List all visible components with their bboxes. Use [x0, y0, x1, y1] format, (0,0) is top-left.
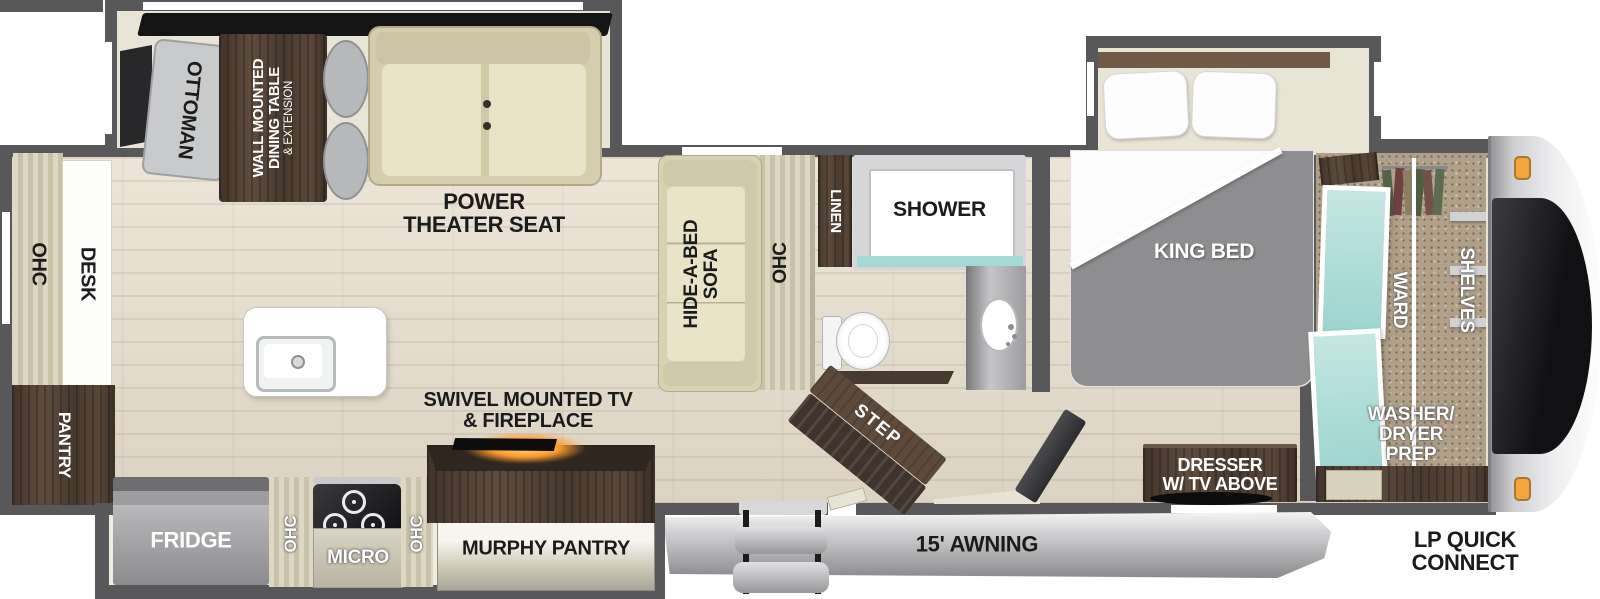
entry-steps	[733, 500, 829, 597]
ward-label: WARD	[1389, 272, 1409, 329]
shelves-label: SHELVES	[1456, 247, 1476, 332]
closet-base-counter	[1326, 470, 1382, 500]
clothes-item	[1432, 169, 1444, 216]
cooktop	[313, 477, 401, 484]
kitchen-sink	[256, 336, 336, 392]
burner	[342, 490, 366, 514]
dining-table: WALL MOUNTED DINING TABLE & EXTENSION	[219, 34, 327, 202]
shower: SHOWER	[853, 155, 1026, 270]
king-bed-label: KING BED	[1154, 241, 1254, 263]
front-cap-window	[1492, 198, 1592, 454]
faucet	[1012, 334, 1017, 339]
cupholder	[483, 122, 491, 130]
ohc-kitchen-left-label: OHC	[282, 516, 300, 553]
window	[2, 212, 10, 324]
sofa-arm	[663, 160, 755, 186]
kitchen-island	[243, 307, 387, 397]
cupholder	[483, 100, 491, 108]
dinette-chair	[323, 122, 369, 200]
window	[682, 147, 782, 155]
sofa-back	[745, 162, 757, 384]
step-tread	[733, 562, 829, 593]
rear-wall	[0, 145, 12, 515]
ottoman-label: OTTOMAN	[173, 60, 204, 160]
dresser-label: DRESSER W/ TV ABOVE	[1162, 456, 1277, 494]
window	[104, 42, 112, 134]
dining-table-label: WALL MOUNTED DINING TABLE & EXTENSION	[251, 59, 295, 178]
linen-cabinet: LINEN	[818, 155, 852, 267]
linen-label: LINEN	[827, 189, 843, 233]
rv-floorplan: OTTOMAN WALL MOUNTED DINING TABLE & EXTE…	[0, 0, 1600, 599]
swivel-tv-label: SWIVEL MOUNTED TV & FIREPLACE	[398, 390, 658, 432]
overhead-cabinet-kitchen-left: OHC	[269, 477, 313, 587]
dinette-chair	[323, 40, 369, 118]
step-tread	[735, 527, 827, 554]
desk: DESK	[62, 160, 112, 387]
fireplace-insert	[452, 438, 557, 451]
overhead-cabinet-sofa: OHC	[755, 155, 815, 390]
microwave: MICRO	[313, 528, 403, 588]
pantry-label: PANTRY	[55, 412, 73, 478]
shower-label: SHOWER	[893, 199, 986, 221]
step-platform	[739, 501, 827, 515]
faucet	[1008, 324, 1014, 330]
hide-a-bed-sofa: HIDE-A-BED SOFA	[658, 155, 762, 392]
toilet	[822, 312, 888, 372]
vanity	[966, 266, 1026, 390]
sofa-arm	[663, 362, 755, 386]
window	[1374, 62, 1381, 116]
headboard	[1098, 52, 1330, 68]
pillow	[1191, 71, 1277, 140]
window	[1171, 505, 1277, 513]
window	[1087, 62, 1094, 116]
theater-seat-console	[481, 64, 489, 176]
lp-quick-connect-label: LP QUICK CONNECT	[1385, 528, 1545, 574]
bath-bedroom-wall	[1032, 150, 1050, 392]
sofa-label: HIDE-A-BED SOFA	[682, 219, 722, 328]
pantry: PANTRY	[12, 385, 115, 505]
desk-label: DESK	[77, 246, 98, 300]
murphy-pantry-label: MURPHY PANTRY	[462, 539, 630, 560]
ohc-sofa-label: OHC	[771, 242, 791, 283]
toilet-seat	[848, 324, 878, 358]
fridge-label: FRIDGE	[150, 528, 231, 551]
micro-label: MICRO	[327, 548, 389, 568]
marker-light	[1514, 477, 1531, 501]
murphy-pantry: MURPHY PANTRY	[437, 519, 655, 591]
overhead-cabinet-desk: OHC	[13, 153, 63, 385]
pillow	[1102, 70, 1189, 140]
awning-label: 15' AWNING	[916, 532, 1038, 555]
theater-seat	[368, 26, 602, 186]
closet-shelf	[1450, 212, 1488, 221]
theater-seat-label: POWER THEATER SEAT	[368, 190, 600, 236]
window	[143, 2, 583, 10]
marker-light	[1514, 156, 1531, 180]
theater-seat-back	[376, 32, 590, 64]
ohc-kitchen-right-label: OHC	[408, 516, 426, 553]
washer-dryer-prep-label: WASHER/ DRYER PREP	[1346, 405, 1476, 465]
hanging-clothes	[1384, 168, 1448, 218]
rear-roof-stub	[0, 0, 103, 12]
tv	[1150, 492, 1272, 505]
king-bed: KING BED	[1070, 150, 1314, 387]
mirror-door	[1317, 185, 1390, 339]
fridge: FRIDGE	[113, 477, 269, 585]
closet-top-wall	[1369, 139, 1496, 153]
faucet	[1006, 342, 1010, 346]
ohc-desk-label: OHC	[28, 243, 49, 287]
faucet	[291, 355, 305, 369]
